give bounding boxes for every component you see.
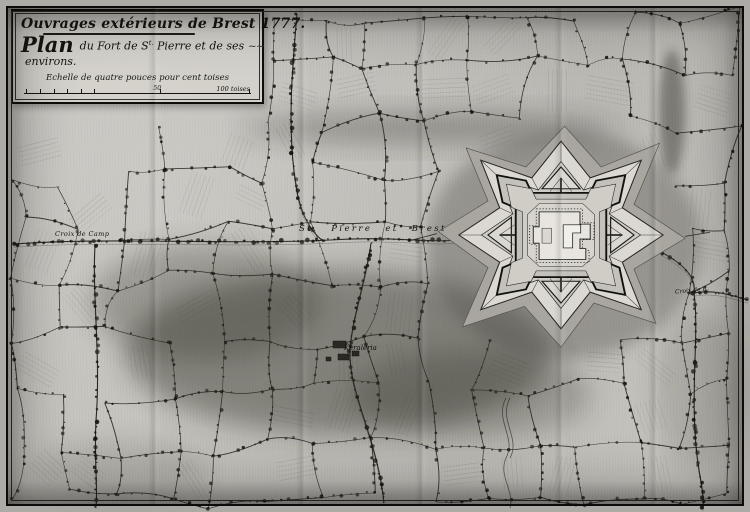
subtitle-text-b: Pierre et de ses bbox=[153, 40, 244, 53]
subtitle-text-a: du Fort de S bbox=[80, 40, 149, 53]
scale-tick bbox=[54, 89, 55, 94]
subtitle-text: du Fort de St. Pierre et de ses ~~ bbox=[80, 39, 264, 55]
subtitle-plan-word: Plan bbox=[21, 36, 74, 55]
scale-right-label: 100 toises bbox=[216, 85, 250, 93]
scale-caption: Echelle de quatre pouces pour cent toise… bbox=[21, 73, 254, 83]
title-cartouche: Ouvrages extérieurs de Brest 1777. Plan … bbox=[11, 9, 264, 104]
scale-tick bbox=[67, 89, 68, 94]
scale-bar: 50 100 toises bbox=[24, 85, 251, 98]
scale-tick bbox=[40, 89, 41, 94]
subtitle-flourish: ~~ bbox=[248, 40, 264, 53]
scale-tick bbox=[94, 89, 95, 94]
map-scan: Croix de Camp St. Pierre et Brest Kerale… bbox=[0, 0, 750, 512]
scale-mid-label: 50 bbox=[153, 85, 161, 92]
scale-tick bbox=[26, 89, 27, 94]
map-title: Ouvrages extérieurs de Brest 1777. bbox=[21, 16, 254, 32]
scale-bar-line bbox=[24, 93, 251, 94]
map-subtitle: Plan du Fort de St. Pierre et de ses ~~ bbox=[21, 36, 254, 55]
subtitle-environs: environs. bbox=[25, 55, 254, 68]
scale-tick bbox=[81, 89, 82, 94]
